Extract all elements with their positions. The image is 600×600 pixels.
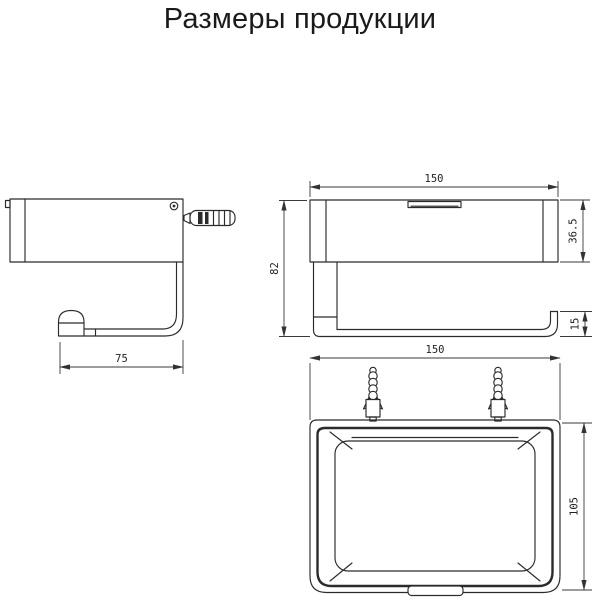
front-view-body <box>310 200 558 262</box>
top-view-tab <box>408 586 463 596</box>
side-view-tab <box>6 201 11 208</box>
dim-side-width: 75 <box>60 340 183 374</box>
dim-front-bar-height: 15 <box>560 312 592 337</box>
dim-label-top-depth: 105 <box>569 497 581 516</box>
dim-front-width: 150 <box>310 173 558 197</box>
side-view-hook-arm <box>59 262 184 336</box>
wall-anchor-left-icon <box>364 367 383 421</box>
front-view-hook-arm <box>314 262 558 337</box>
dim-front-box-height: 36.5 <box>560 200 590 262</box>
top-view: 150 <box>310 344 592 596</box>
side-view: 75 <box>6 199 236 374</box>
dim-label-front-box-height: 36.5 <box>568 218 580 243</box>
dim-top-depth: 105 <box>562 423 592 590</box>
screw-head-icon <box>170 202 178 210</box>
dim-front-total-height: 82 <box>269 201 310 337</box>
wall-anchor-right-icon <box>489 367 508 421</box>
wall-anchor-side-icon <box>184 211 235 226</box>
dim-label-front-total-height: 82 <box>269 262 281 275</box>
top-view-tray <box>310 420 560 596</box>
dim-label-front-width: 150 <box>425 173 444 185</box>
dim-top-width: 150 <box>310 344 560 420</box>
front-view-slot <box>408 202 461 208</box>
dim-label-front-bar-height: 15 <box>570 318 582 331</box>
technical-drawing-canvas: 75 150 <box>0 0 600 600</box>
side-view-body <box>10 199 183 262</box>
front-view: 150 36.5 82 <box>269 173 592 337</box>
dim-label-top-width: 150 <box>426 344 445 356</box>
dim-label-side-width: 75 <box>115 353 128 365</box>
